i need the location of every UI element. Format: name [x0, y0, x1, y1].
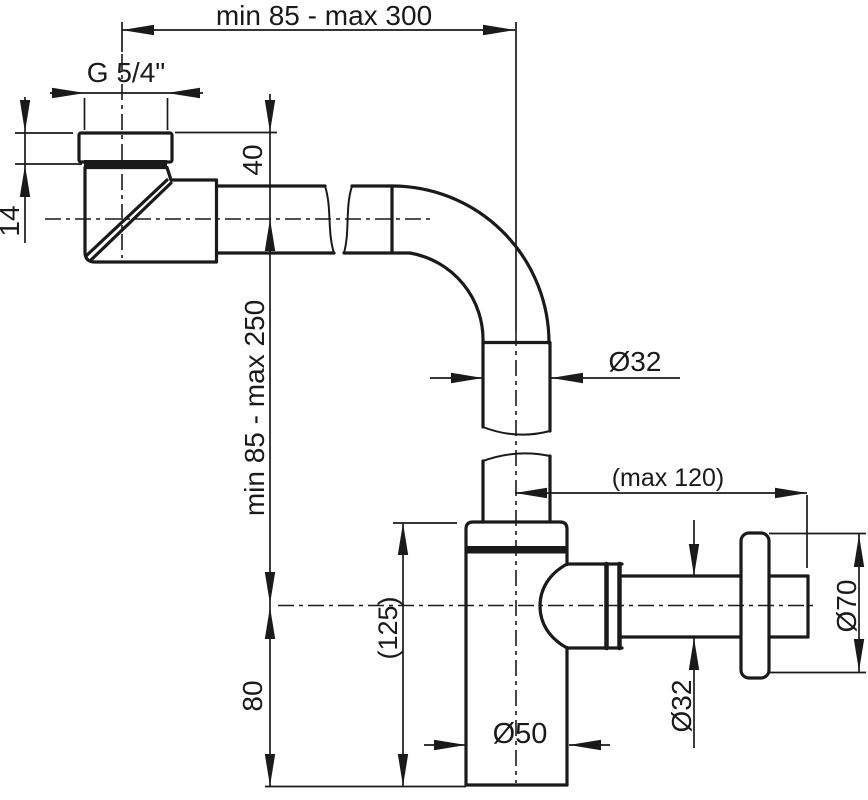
arrow-thread-right	[167, 88, 200, 98]
arrow-250-top	[265, 219, 275, 251]
arrow-cup-dia-right	[569, 740, 601, 750]
arrow-250-bottom	[265, 572, 275, 604]
arrow-outlet-dia-top	[689, 544, 699, 576]
arrow-125-top	[398, 523, 408, 555]
arrow-flange-dia-bottom	[854, 639, 864, 671]
arrow-125-bottom	[398, 754, 408, 786]
inlet-drop-label: 40	[237, 144, 268, 175]
trap-technical-drawing: min 85 - max 300 G 5/4" 14 40 min 85 - m…	[0, 0, 868, 800]
arrow-thread-left	[52, 88, 85, 98]
arrow-80-bottom	[265, 754, 275, 786]
bend-inner-arc	[410, 253, 483, 342]
arrow-nut-height-bottom	[20, 165, 30, 197]
arrow-cup-dia-left	[434, 740, 466, 750]
body-height-label: (125)	[373, 596, 403, 659]
outlet-diameter-label: Ø32	[666, 680, 697, 733]
bend-outer-arc	[392, 186, 549, 343]
outlet-height-label: 80	[237, 680, 268, 711]
top-span-label: min 85 - max 300	[216, 0, 432, 31]
elbow-miter-line-2	[91, 183, 171, 260]
arrow-outlet-dia-bottom	[689, 638, 699, 670]
elbow-miter-line-1	[86, 180, 167, 256]
arrow-80-top	[265, 607, 275, 639]
arrow-reach-left	[515, 488, 547, 498]
arrow-top-span-right	[483, 25, 515, 35]
dimension-lines	[15, 22, 866, 787]
arrow-top-span-left	[122, 25, 154, 35]
trap-technical-drawing-page: min 85 - max 300 G 5/4" 14 40 min 85 - m…	[0, 0, 868, 800]
nut-height-label: 14	[0, 205, 25, 236]
outlet-reach-label: (max 120)	[612, 464, 725, 492]
trap-nut-band	[467, 546, 566, 554]
arrow-nut-height-top	[20, 100, 30, 132]
product-outline	[79, 133, 808, 785]
flange-diameter-label: Ø70	[831, 580, 862, 633]
thread-label: G 5/4"	[87, 57, 165, 88]
cup-diameter-label: Ø50	[493, 718, 548, 750]
arrow-pipe-dia-left	[451, 373, 483, 383]
arrow-pipe-dia-right	[551, 373, 583, 383]
arrow-reach-right	[775, 488, 807, 498]
inlet-nut	[79, 133, 172, 162]
inlet-nut-band	[84, 160, 167, 168]
arrow-40-top	[265, 100, 275, 132]
pipe-diameter-label: Ø32	[609, 346, 662, 377]
vertical-span-label: min 85 - max 250	[239, 300, 270, 516]
arrow-flange-dia-top	[854, 535, 864, 567]
dimension-arrowheads	[20, 25, 864, 786]
